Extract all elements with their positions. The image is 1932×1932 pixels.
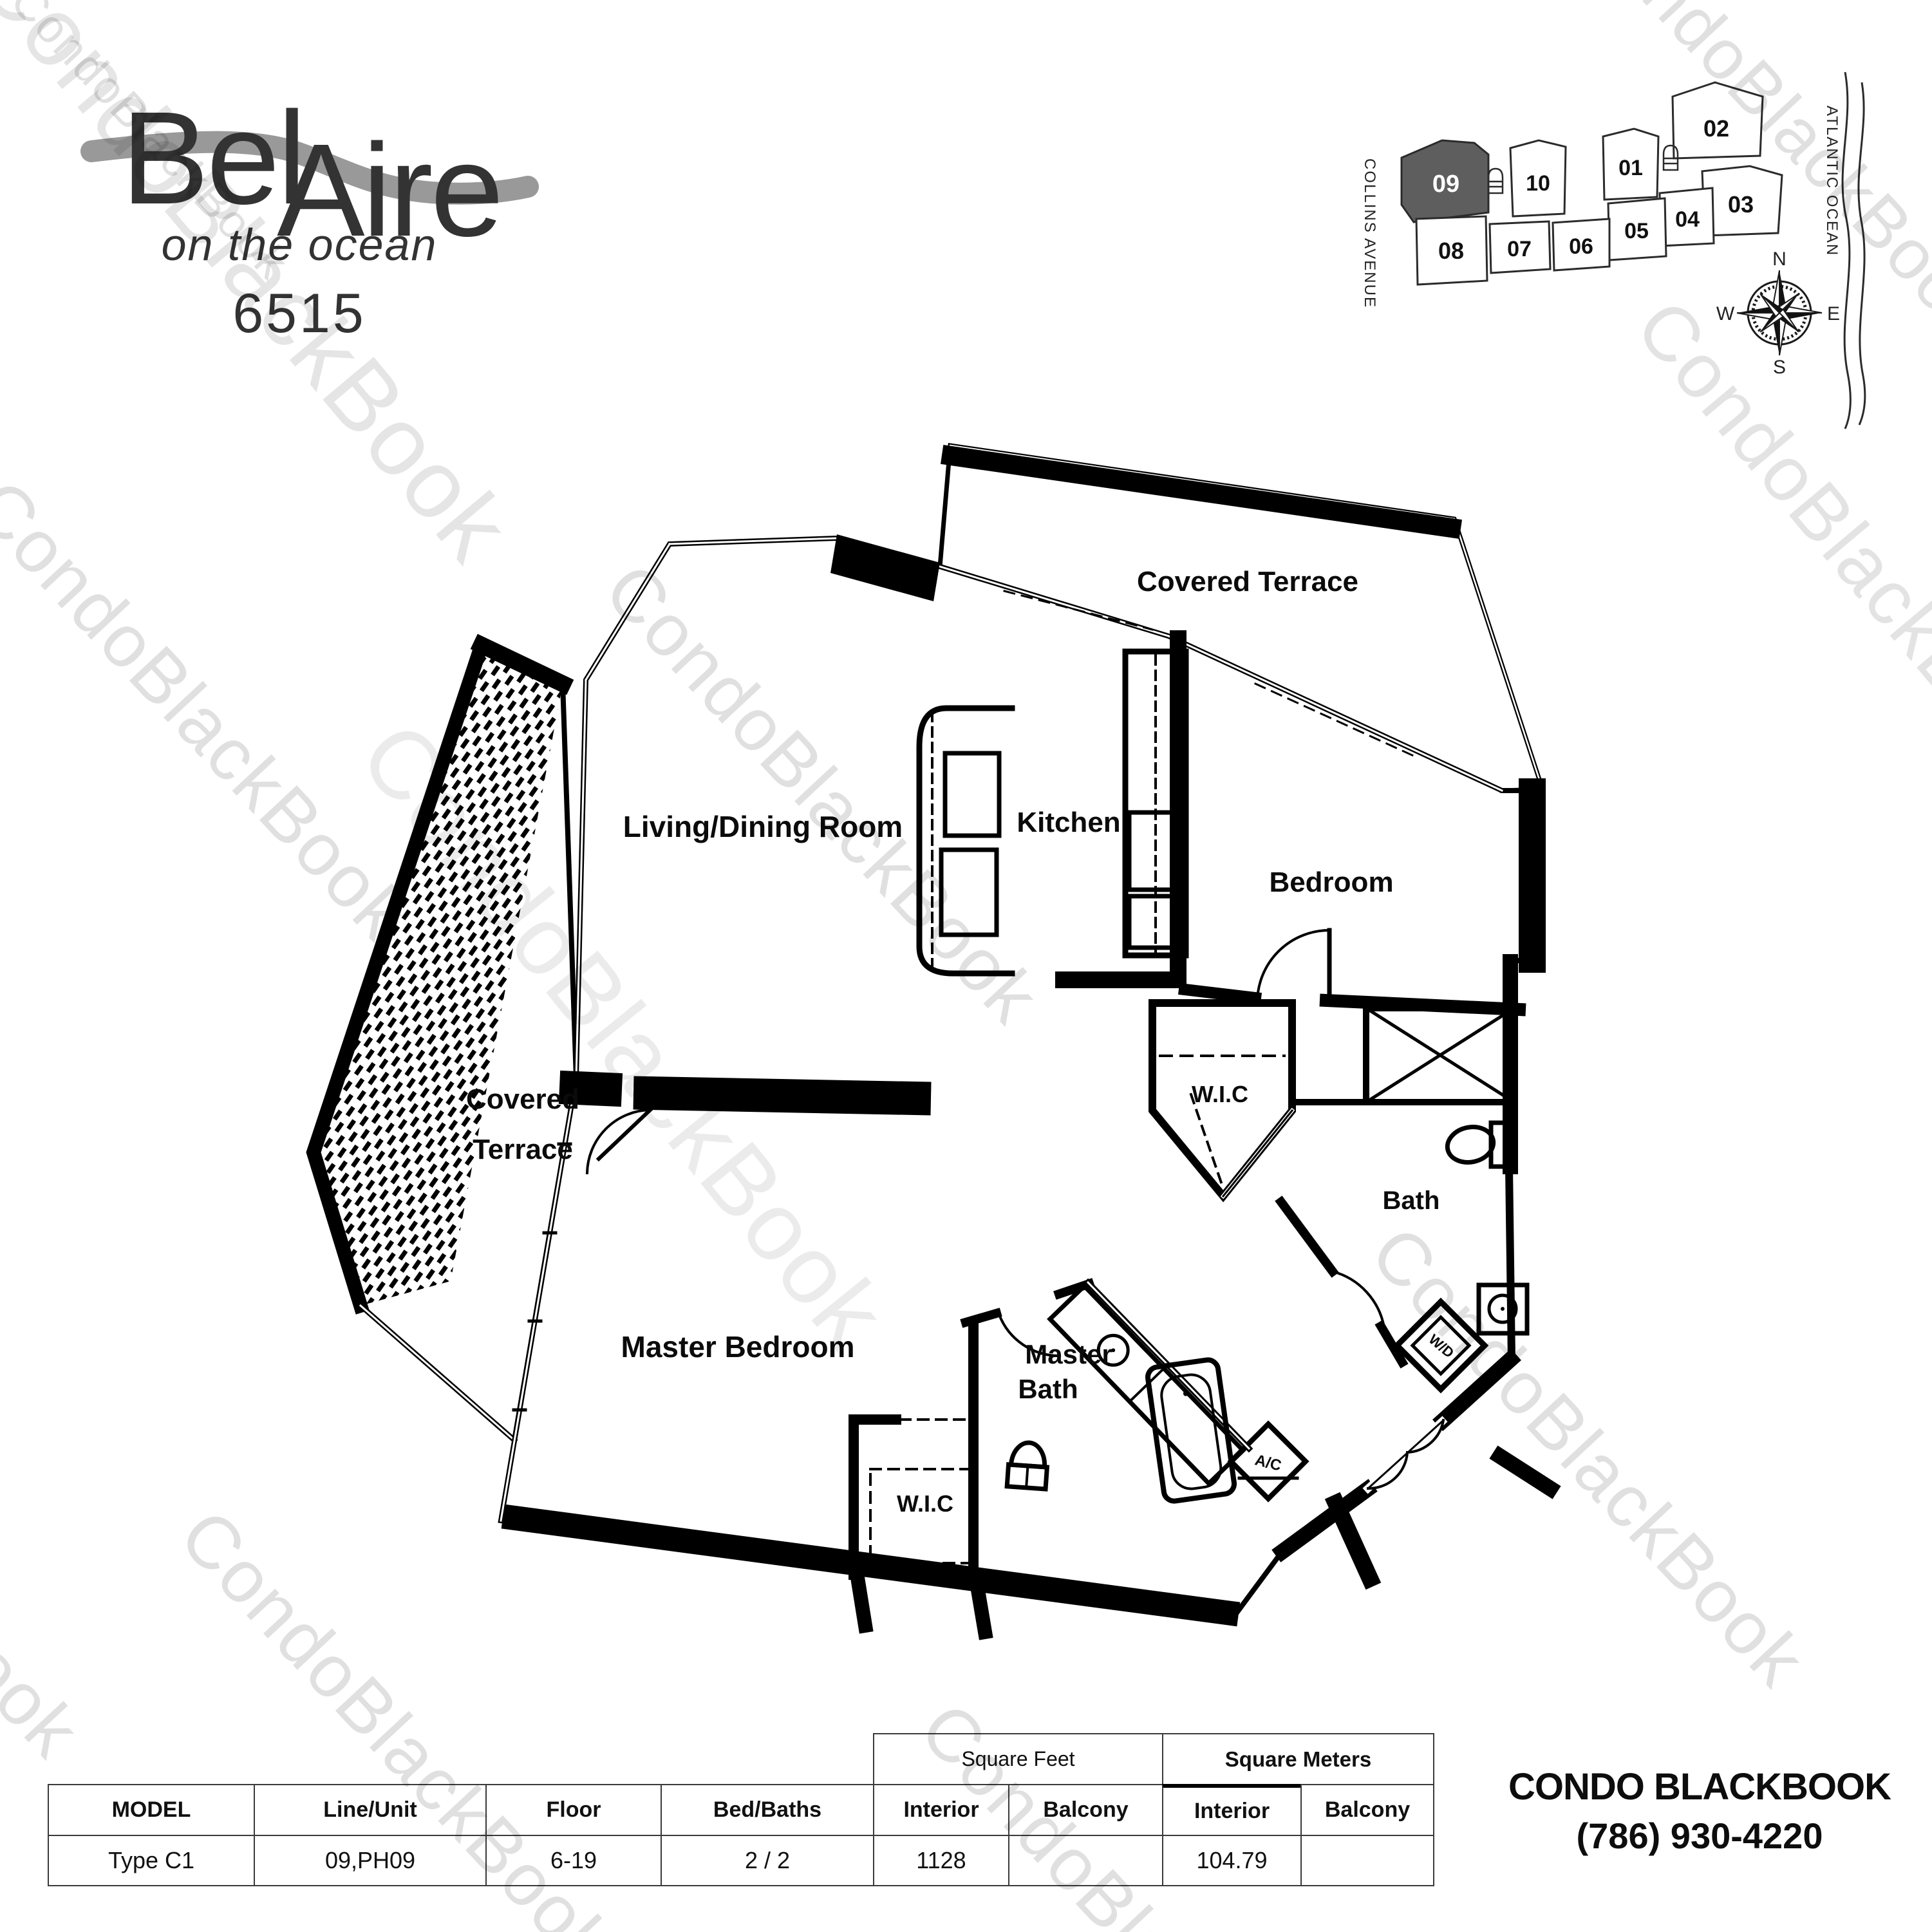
unit-03-label: 03 [1728,191,1754,218]
table-value-sf-interior: 1128 [873,1835,1009,1886]
label-master-bath-1: Master [1025,1339,1112,1369]
table-header-bed-baths: Bed/Baths [661,1784,874,1836]
unit-05-label: 05 [1624,219,1649,243]
street-label: COLLINS AVENUE [1361,158,1378,308]
label-bath: Bath [1383,1186,1440,1215]
label-wic-bedroom: W.I.C [1192,1081,1248,1107]
logo-tagline: on the ocean [132,219,467,270]
unit-04-label: 04 [1675,207,1700,232]
compass-s-label: S [1773,357,1786,378]
compass-w-label: W [1716,303,1735,324]
label-wd: W/D [1426,1331,1458,1362]
footer-brand: CONDO BLACKBOOK [1468,1765,1931,1808]
table-header-model: MODEL [48,1784,255,1836]
label-terrace-left-1: Covered [466,1083,579,1115]
table-value-line-unit: 09,PH09 [254,1835,487,1886]
shoreline-waves-icon [1843,72,1865,429]
table-value-sm-balcony [1300,1835,1434,1886]
terrace-left-hatch [314,645,563,1306]
table-header-sf-balcony: Balcony [1008,1784,1163,1836]
compass-n-label: N [1772,249,1787,270]
table-header-sm-interior: Interior [1162,1784,1302,1836]
logo-building-number: 6515 [132,282,467,346]
site-key-map [1402,72,1865,429]
label-master-bedroom: Master Bedroom [621,1330,855,1364]
unit-07-label: 07 [1507,237,1532,261]
table-value-floor: 6-19 [485,1835,662,1886]
label-living-dining: Living/Dining Room [623,810,903,843]
table-header-line-unit: Line/Unit [254,1784,487,1836]
table-header-sf-interior: Interior [873,1784,1009,1836]
table-value-bed-baths: 2 / 2 [661,1835,874,1886]
label-bedroom: Bedroom [1269,867,1393,898]
unit-10-label: 10 [1526,171,1550,196]
ocean-label: ATLANTIC OCEAN [1823,106,1841,256]
unit-01-label: 01 [1618,156,1643,180]
compass-rose-icon [1737,270,1822,355]
table-span-header-square-meters: Square Meters [1162,1733,1434,1785]
label-wic-master: W.I.C [897,1490,953,1517]
table-value-model: Type C1 [48,1835,255,1886]
label-covered-terrace-top: Covered Terrace [1137,566,1358,597]
unit-09-label: 09 [1432,171,1459,198]
table-header-sm-balcony: Balcony [1300,1784,1434,1836]
table-value-sm-interior: 104.79 [1162,1835,1302,1886]
footer-contact: CONDO BLACKBOOK (786) 930-4220 [1468,1765,1931,1857]
table-value-sf-balcony [1008,1835,1163,1886]
unit-08-label: 08 [1438,238,1464,264]
floor-plan [314,445,1550,1632]
table-span-header-square-feet: Square Feet [873,1733,1163,1785]
unit-02-label: 02 [1703,115,1729,142]
unit-06-label: 06 [1569,234,1593,259]
floor-plan-page: 09 10 01 02 03 04 05 06 07 08 COLLINS AV… [0,0,1932,1932]
label-kitchen: Kitchen [1017,807,1120,838]
label-master-bath-2: Bath [1018,1374,1078,1404]
stairs-icon [1488,169,1503,193]
label-terrace-left-2: Terrace [473,1134,573,1165]
table-header-floor: Floor [485,1784,662,1836]
footer-phone: (786) 930-4220 [1468,1815,1931,1857]
compass-e-label: E [1827,303,1840,324]
